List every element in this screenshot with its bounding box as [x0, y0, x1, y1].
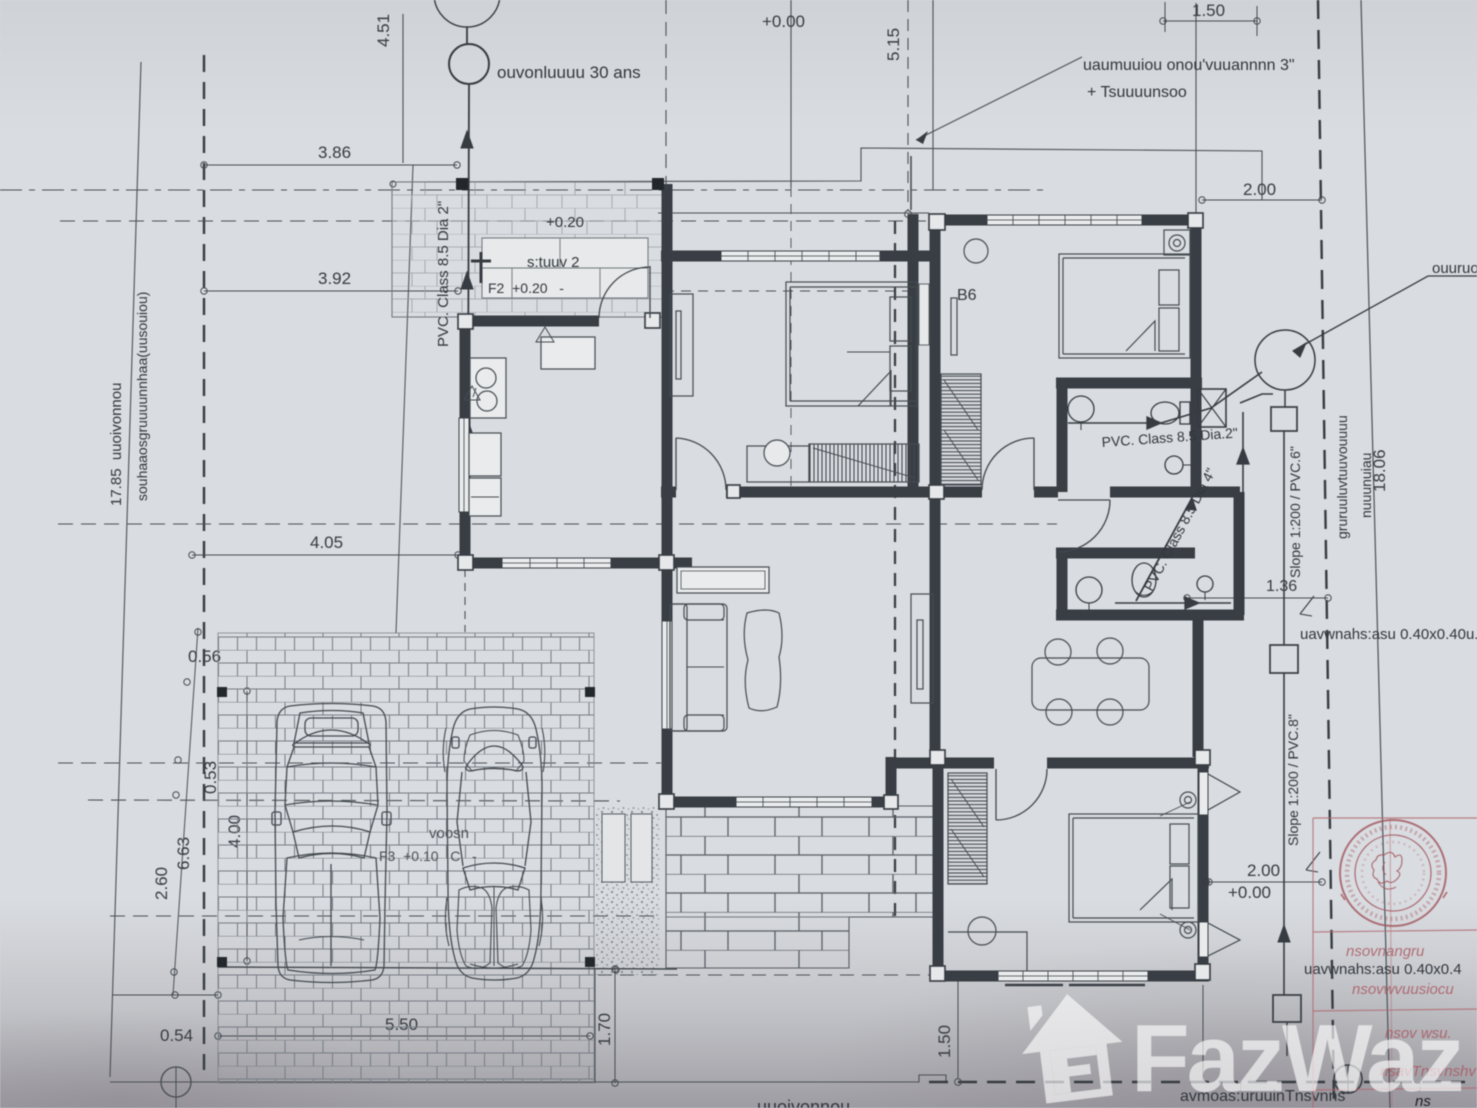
- svg-text:PVC. Class 8.5 Dia 2": PVC. Class 8.5 Dia 2": [435, 201, 452, 347]
- svg-text:3.92: 3.92: [318, 269, 351, 288]
- svg-text:nsovwvuusiocu: nsovwvuusiocu: [1352, 981, 1454, 998]
- svg-text:B6: B6: [957, 287, 977, 304]
- svg-text:uavwnahs:asu 0.40x0.4: uavwnahs:asu 0.40x0.4: [1304, 961, 1462, 978]
- svg-text:souhaaosgruuuunnhaa(uusouiou): souhaaosgruuuunnhaa(uusouiou): [134, 292, 150, 501]
- svg-text:uuoivonnou: uuoivonnou: [757, 1097, 850, 1108]
- svg-text:5.15: 5.15: [884, 28, 903, 61]
- svg-text:uaumuuiou onou'vuuannnn 3": uaumuuiou onou'vuuannnn 3": [1083, 57, 1295, 74]
- svg-text:+0.00: +0.00: [1228, 883, 1271, 902]
- svg-text:0.54: 0.54: [160, 1026, 193, 1045]
- svg-text:uavwnahs:asu 0.40x0.40u.: uavwnahs:asu 0.40x0.40u.: [1300, 626, 1477, 643]
- svg-text:Slope 1:200 / PVC.6": Slope 1:200 / PVC.6": [1287, 446, 1303, 578]
- svg-text:ouuruo: ouuruo: [1432, 260, 1477, 277]
- svg-text:1.50: 1.50: [1192, 1, 1225, 20]
- svg-text:+ Tsuuuunsoo: + Tsuuuunsoo: [1087, 84, 1187, 101]
- svg-text:4.05: 4.05: [310, 533, 343, 552]
- svg-text:FazWaz: FazWaz: [1131, 1005, 1461, 1108]
- svg-text:Slope 1:200 / PVC.8": Slope 1:200 / PVC.8": [1285, 714, 1301, 846]
- svg-text:2.00: 2.00: [1243, 180, 1276, 199]
- svg-text:3.86: 3.86: [318, 143, 351, 162]
- svg-text:17.85 uuoivonnou: 17.85 uuoivonnou: [108, 383, 125, 506]
- svg-text:2.00: 2.00: [1247, 861, 1280, 880]
- svg-text:gruruuluvtuuvouuuu: gruruuluvtuuvouuuu: [1334, 415, 1350, 539]
- svg-text:voosn: voosn: [429, 825, 469, 842]
- svg-text:1.50: 1.50: [935, 1025, 954, 1058]
- svg-text:2.60: 2.60: [152, 867, 171, 900]
- svg-text:nuuunuiau: nuuunuiau: [1358, 453, 1374, 518]
- svg-text:1.70: 1.70: [595, 1013, 614, 1046]
- svg-text:+0.20: +0.20: [546, 214, 584, 231]
- svg-text:F3 +0.10 C -: F3 +0.10 C -: [379, 848, 477, 864]
- svg-text:0.53: 0.53: [201, 761, 220, 794]
- svg-text:+0.00: +0.00: [762, 12, 805, 31]
- svg-text:0.56: 0.56: [188, 647, 221, 666]
- svg-text:nsovnangru: nsovnangru: [1346, 943, 1425, 960]
- svg-text:ouvonluuuu 30 ans: ouvonluuuu 30 ans: [497, 63, 641, 82]
- svg-text:F2 +0.20 -: F2 +0.20 -: [488, 280, 564, 296]
- svg-text:1.36: 1.36: [1266, 578, 1297, 595]
- svg-text:s:tuuv 2: s:tuuv 2: [527, 254, 580, 271]
- svg-text:4.51: 4.51: [374, 14, 393, 47]
- svg-text:6.63: 6.63: [174, 837, 193, 870]
